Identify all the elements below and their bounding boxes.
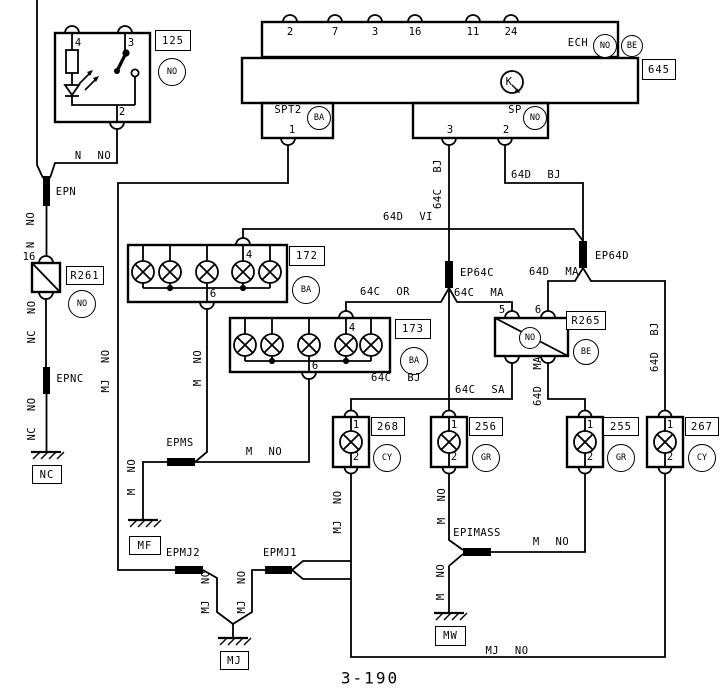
wire-label-mj-no-bottom: MJ NO xyxy=(485,645,528,657)
pin-label-173-6: 6 xyxy=(312,360,318,372)
pin-label-ech-16: 16 xyxy=(409,26,422,38)
color-badge-ech-be: BE xyxy=(621,35,643,57)
color-badge-256-gr: GR xyxy=(472,444,500,472)
pin-label-ech-7: 7 xyxy=(332,26,338,38)
color-badge-173-ba: BA xyxy=(400,347,428,375)
splice-ep64d-bar xyxy=(579,241,587,268)
ground-symbols xyxy=(31,452,467,645)
lamp-267-id-box: 267 xyxy=(685,417,719,436)
wire-label-m-no-epimass: M NO xyxy=(533,536,569,548)
wire-label-64c-sa: 64C SA xyxy=(455,384,505,396)
connector-spt2-label: SPT2 xyxy=(274,104,301,116)
wire-label-64c-or: 64C OR xyxy=(360,286,410,298)
relay-r265-id-box: R265 xyxy=(566,311,606,330)
wire-label-64c-bj-bottom: 64C BJ xyxy=(371,372,421,384)
splice-epmj2-label: EPMJ2 xyxy=(166,547,200,559)
page-number: 3-190 xyxy=(341,669,399,688)
r261-diagonal xyxy=(32,263,60,292)
pin-label-267-2: 2 xyxy=(667,451,673,463)
wire-label-64d-bj-vertical: 64D BJ xyxy=(649,322,661,372)
k-symbol-letter: K xyxy=(506,76,513,88)
color-badge-125-no: NO xyxy=(158,58,186,86)
splice-epmj1-bar xyxy=(265,566,292,574)
pin-label-268-2: 2 xyxy=(353,451,359,463)
pin-label-spt2-1: 1 xyxy=(289,124,295,136)
color-badge-spt2-ba: BA xyxy=(307,106,331,130)
pin-label-sp-3: 3 xyxy=(447,124,453,136)
pin-label-ech-3: 3 xyxy=(372,26,378,38)
pin-label-r265-6: 6 xyxy=(535,304,541,316)
wire-label-nc-no-2: NC NO xyxy=(26,397,38,440)
splice-ep64c-label: EP64C xyxy=(460,267,494,279)
wire-label-m-no-256: M NO xyxy=(436,488,448,524)
wire-label-64d-vi: 64D VI xyxy=(383,211,433,223)
wire-label-n-no-vertical: N NO xyxy=(25,212,37,248)
unit-645-id-box: 645 xyxy=(642,59,676,80)
cluster-173-id-box: 173 xyxy=(395,319,431,339)
pin-label-ech-11: 11 xyxy=(467,26,480,38)
wire-label-m-no-mw: M NO xyxy=(435,564,447,600)
lamp-255-id-box: 255 xyxy=(603,417,639,436)
splice-ep64c-bar xyxy=(445,261,453,288)
pin-label-256-1: 1 xyxy=(451,419,457,431)
pin-label-125-2: 2 xyxy=(119,106,125,118)
wire-label-64c-ma: 64C MA xyxy=(454,287,504,299)
cluster-172-id-box: 172 xyxy=(289,246,325,266)
ground-mf-icon xyxy=(128,520,161,527)
splice-epimass-bar xyxy=(463,548,491,556)
lamp-cluster-172-lamps xyxy=(132,245,281,302)
pin-label-268-1: 1 xyxy=(353,419,359,431)
wire-label-mj-no-268: MJ NO xyxy=(332,490,344,533)
splice-epms-bar xyxy=(167,458,195,466)
pin-label-ech-2: 2 xyxy=(287,26,293,38)
pin-label-r265-5: 5 xyxy=(499,304,505,316)
lamp-268-id-box: 268 xyxy=(371,417,405,436)
pin-label-255-2: 2 xyxy=(587,451,593,463)
wiring-graphics xyxy=(0,0,720,693)
pin-label-173-4: 4 xyxy=(349,322,355,334)
pin-label-172-4: 4 xyxy=(246,249,252,261)
wire-label-64c-bj-vertical: 64C BJ xyxy=(432,159,444,209)
relay-r261-id-box: R261 xyxy=(66,266,104,285)
splice-epmj1-label: EPMJ1 xyxy=(263,547,297,559)
lamp-cluster-173-lamps xyxy=(234,318,382,372)
ground-nc-icon xyxy=(31,452,64,459)
connector-sp-label: SP xyxy=(508,104,522,116)
color-badge-r265-be: BE xyxy=(573,339,599,365)
connector-ech-label: ECH xyxy=(568,37,588,49)
pin-label-255-1: 1 xyxy=(587,419,593,431)
ground-nc-box: NC xyxy=(32,465,62,484)
wire-label-64d-ma-top: 64D MA xyxy=(529,266,579,278)
wire-label-m-no-172: M NO xyxy=(192,350,204,386)
splice-epn-bar xyxy=(43,176,50,206)
splice-epms-label: EPMS xyxy=(166,437,193,449)
wire-label-mj-no-main: MJ NO xyxy=(100,349,112,392)
wire-label-m-no-epms: M NO xyxy=(246,446,282,458)
switch-contact xyxy=(131,69,138,76)
state-badge-r265-no: NO xyxy=(519,327,541,349)
wire-label-64d-ma-vertical: 64D MA xyxy=(532,356,544,406)
color-badge-sp-no: NO xyxy=(523,106,547,130)
pin-label-125-4: 4 xyxy=(75,37,81,49)
color-badge-ech-no: NO xyxy=(593,34,617,58)
wire-label-mj-no-epmj1: MJ NO xyxy=(236,570,248,613)
ground-mf-box: MF xyxy=(129,536,161,555)
splice-epn-label: EPN xyxy=(56,186,76,198)
unit-645-box xyxy=(242,58,638,103)
pin-label-sp-2: 2 xyxy=(503,124,509,136)
color-badge-267-cy: CY xyxy=(688,444,716,472)
wire-label-nc-no-1: NC NO xyxy=(26,300,38,343)
connector-ech-box xyxy=(262,22,618,57)
wire-label-64d-bj-top: 64D BJ xyxy=(511,169,561,181)
pin-label-256-2: 2 xyxy=(451,451,457,463)
ground-mw-icon xyxy=(434,613,467,620)
pin-label-r261-16: 16 xyxy=(23,251,36,263)
splice-epnc-label: EPNC xyxy=(56,373,83,385)
color-badge-172-ba: BA xyxy=(292,276,320,304)
led-symbol xyxy=(65,85,79,95)
ground-mj-box: MJ xyxy=(220,651,249,670)
pin-label-267-1: 1 xyxy=(667,419,673,431)
ground-mj-icon xyxy=(218,638,251,645)
splice-epnc-bar xyxy=(43,367,50,394)
lamp-256-id-box: 256 xyxy=(469,417,503,436)
wire-label-n-no: N NO xyxy=(75,150,111,162)
ground-mw-box: MW xyxy=(435,626,466,646)
pin-label-172-6: 6 xyxy=(210,288,216,300)
color-badge-268-cy: CY xyxy=(373,444,401,472)
resistor-symbol xyxy=(66,50,78,73)
switch-lever xyxy=(117,53,126,71)
switch-125-id-box: 125 xyxy=(155,30,191,51)
color-badge-r261-no: NO xyxy=(68,290,96,318)
color-badge-255-gr: GR xyxy=(607,444,635,472)
splice-epimass-label: EPIMASS xyxy=(453,527,501,539)
pin-label-ech-24: 24 xyxy=(505,26,518,38)
pin-label-125-3: 3 xyxy=(128,37,134,49)
splice-epmj2-bar xyxy=(175,566,203,574)
wiring-diagram: 2 7 3 16 11 24 ECH NO BE 645 K SPT2 BA 1… xyxy=(0,0,720,693)
wire-label-mj-no-epmj2: MJ NO xyxy=(200,570,212,613)
wire-label-m-no-mf: M NO xyxy=(126,459,138,495)
splice-ep64d-label: EP64D xyxy=(595,250,629,262)
